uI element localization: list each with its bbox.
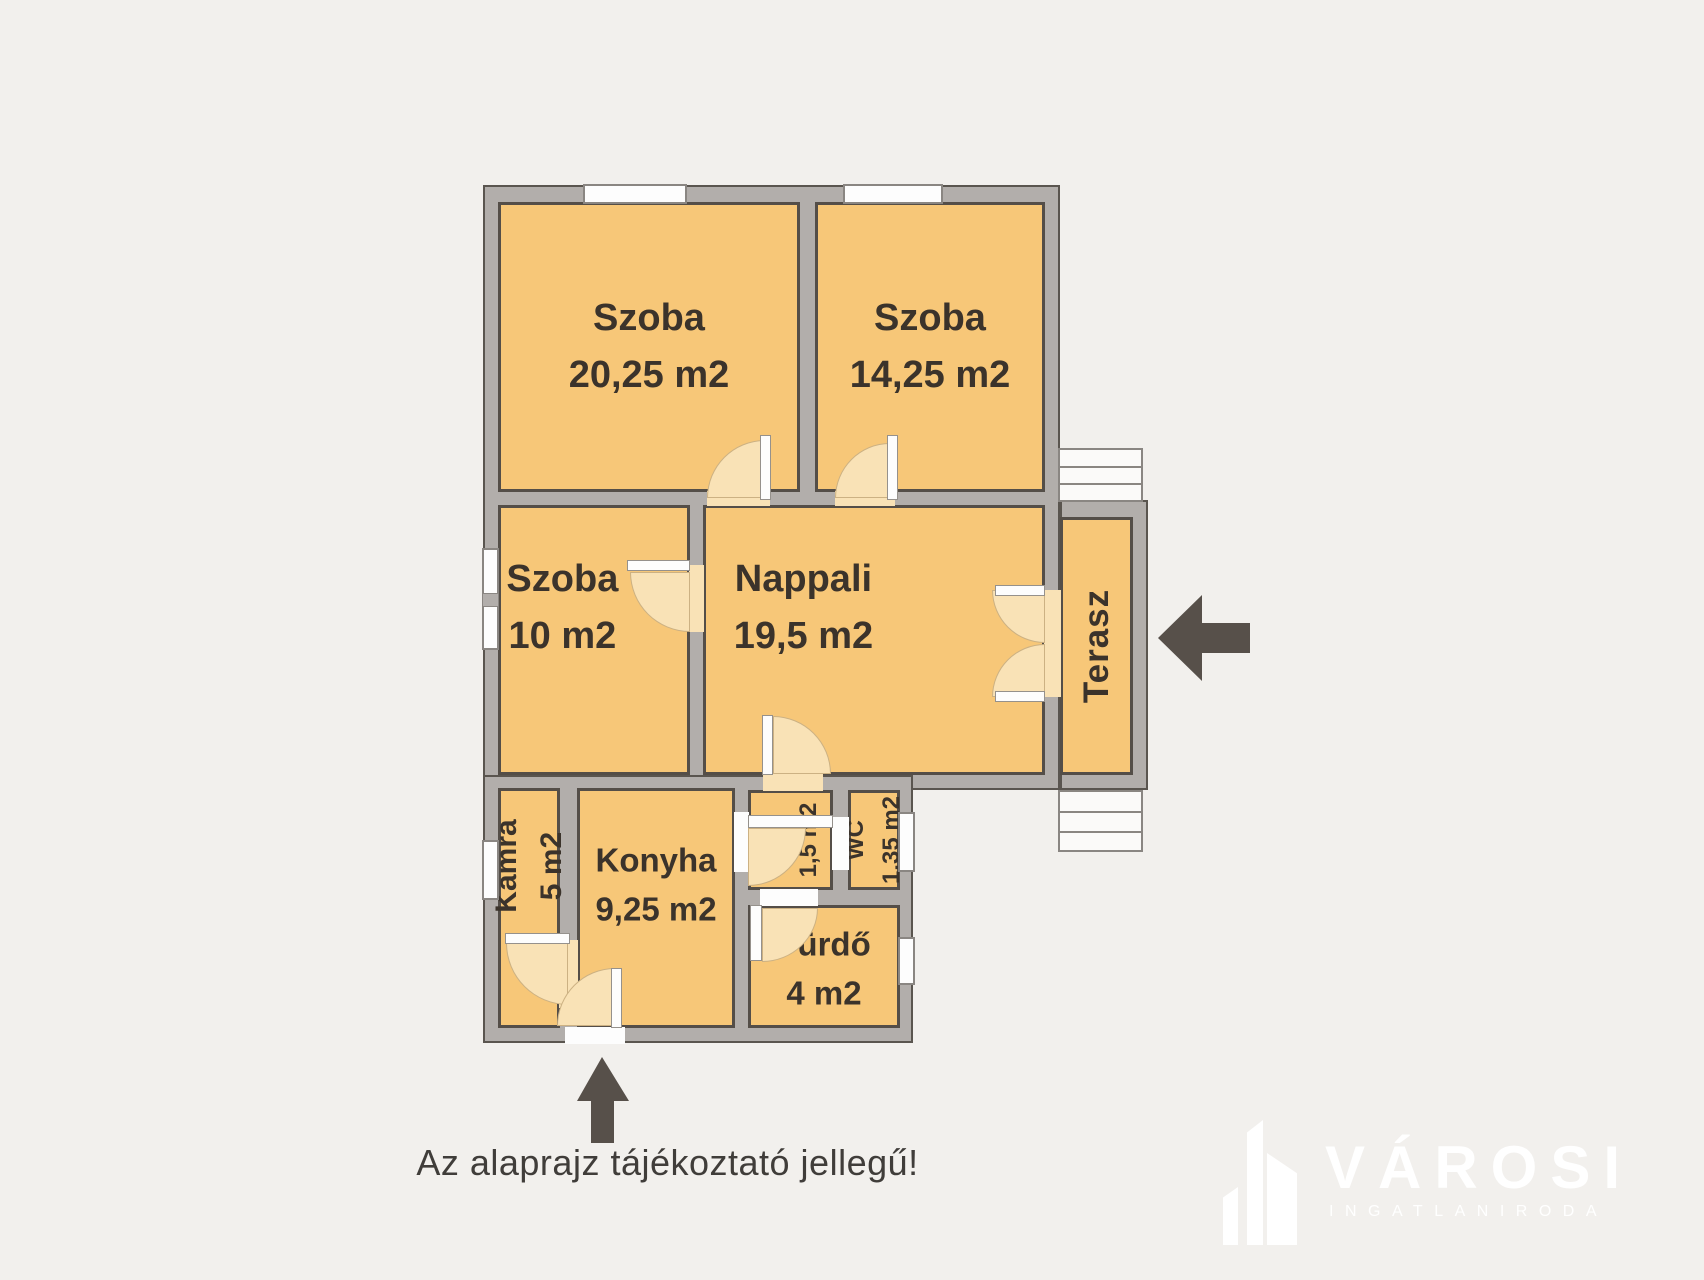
door-leaf-terasz-upper [995, 585, 1045, 596]
room-label-terasz: Terasz [1070, 589, 1123, 703]
stair-tread [1060, 466, 1141, 468]
doorway-konyha-kozl [734, 812, 749, 872]
door-leaf-nappali [762, 715, 773, 775]
room-label-konyha: Konyha 9,25 m2 [595, 835, 716, 934]
agency-logo: VÁROSI INGATLANIRODA [1215, 1115, 1635, 1255]
window-wc-right [898, 812, 915, 872]
room-label-szoba-14: Szoba 14,25 m2 [850, 290, 1011, 404]
logo-building-icon [1223, 1187, 1238, 1245]
door-leaf-furdo [750, 905, 762, 961]
door-leaf-kozl [748, 815, 833, 828]
doorway-furdo [760, 889, 818, 906]
room-szoba-14: Szoba 14,25 m2 [815, 202, 1045, 492]
logo-building-icon [1247, 1120, 1263, 1245]
window-szoba-14-top [843, 184, 943, 204]
doorway-wc [832, 817, 849, 870]
door-leaf-terasz-lower [995, 691, 1045, 702]
entrance-arrow-up-icon [575, 1055, 631, 1145]
door-leaf-szoba-20 [760, 435, 771, 500]
room-wc: WC 1,35 m2 [848, 790, 900, 890]
door-leaf-kamra [505, 933, 570, 944]
doorway-terasz-french [1044, 590, 1061, 697]
stair-tread [1060, 831, 1141, 833]
door-leaf-entrance [611, 968, 622, 1028]
logo-building-icon [1267, 1153, 1297, 1245]
room-nappali: Nappali 19,5 m2 [703, 505, 1045, 775]
stair-tread [1060, 811, 1141, 813]
window-szoba-20-top [583, 184, 687, 204]
doorway-entrance [565, 1027, 625, 1044]
window-mullion [482, 593, 499, 607]
logo-subtitle: INGATLANIRODA [1329, 1203, 1608, 1221]
room-label-szoba-20: Szoba 20,25 m2 [569, 290, 730, 404]
room-szoba-10: Szoba 10 m2 [498, 505, 690, 775]
door-leaf-szoba-14 [887, 435, 898, 500]
doorway-nappali-kozl [763, 774, 823, 791]
door-leaf-szoba-10 [627, 560, 690, 571]
stairs-terasz-upper [1058, 448, 1143, 502]
room-terasz: Terasz [1060, 517, 1133, 775]
logo-name: VÁROSI [1325, 1133, 1633, 1202]
room-label-szoba-10: Szoba 10 m2 [506, 551, 618, 665]
window-kamra-left [482, 840, 499, 900]
doorway-szoba-10 [689, 565, 704, 632]
window-furdo-right [898, 937, 915, 985]
disclaimer-text: Az alaprajz tájékoztató jellegű! [385, 1142, 950, 1184]
stairs-terasz-lower [1058, 790, 1143, 852]
room-label-nappali: Nappali 19,5 m2 [734, 551, 873, 665]
stair-tread [1060, 483, 1141, 485]
entrance-arrow-left-icon [1155, 592, 1255, 687]
